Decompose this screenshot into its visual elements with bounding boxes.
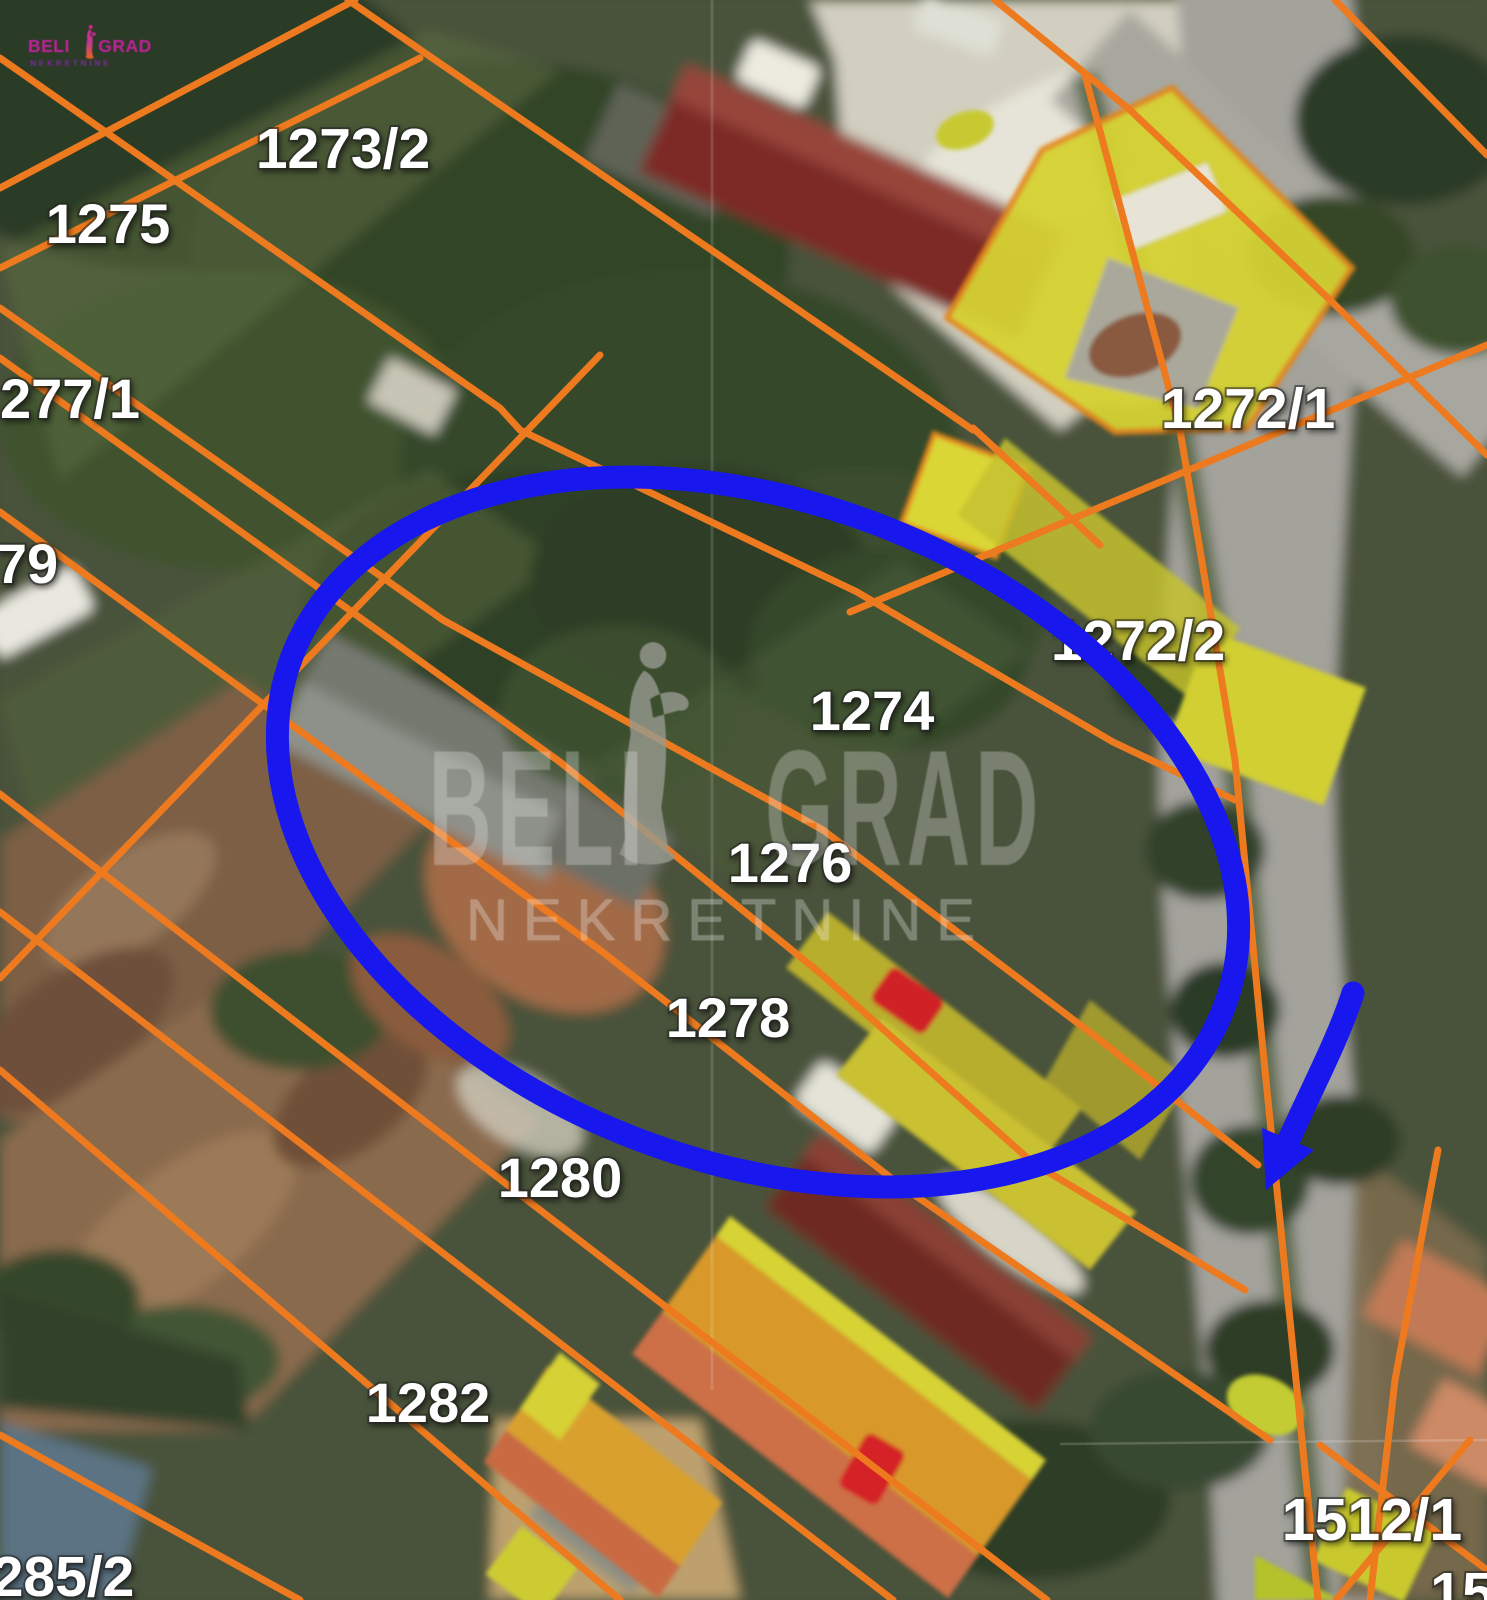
watermark-word-left: BELI: [428, 717, 648, 902]
parcel-label-1512/1: 1512/1: [1282, 1487, 1462, 1553]
parcel-label-1280: 1280: [498, 1146, 623, 1209]
parcel-label-1278: 1278: [666, 986, 791, 1049]
parcel-label-1275: 1275: [46, 192, 171, 255]
parcel-label-285/2: 285/2: [0, 1545, 134, 1600]
parcel-label-15: 15: [1430, 1561, 1487, 1600]
parcel-label-1282: 1282: [366, 1371, 491, 1434]
parcel-label-1273/2: 1273/2: [256, 117, 430, 181]
cadastral-map-screenshot: 1273/21275277/1791272/11272/212741276127…: [0, 0, 1487, 1600]
parcel-label-79: 79: [0, 532, 58, 595]
parcel-label-277/1: 277/1: [0, 367, 140, 430]
parcel-label-1272/1: 1272/1: [1161, 377, 1335, 441]
watermark-subtitle: NEKRETNINE: [466, 888, 990, 953]
watermark-word-right: GRAD: [765, 717, 1043, 902]
logo-subtitle: NEKRETNINE: [30, 58, 111, 68]
